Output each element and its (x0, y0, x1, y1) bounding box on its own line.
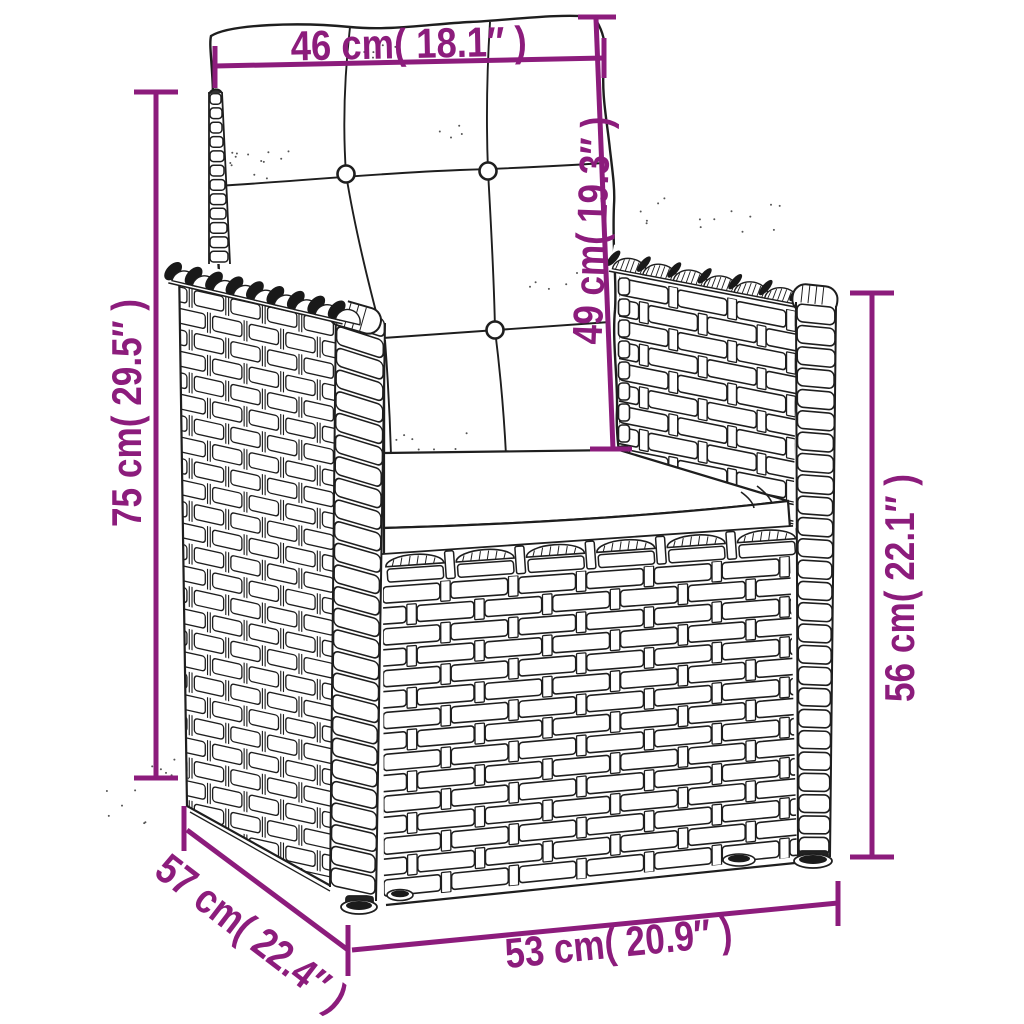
svg-text:49 cm( 19.3″ ): 49 cm( 19.3″ ) (563, 116, 619, 346)
svg-text:46 cm( 18.1″ ): 46 cm( 18.1″ ) (290, 18, 527, 70)
svg-text:75 cm( 29.5″ ): 75 cm( 29.5″ ) (103, 299, 150, 527)
svg-text:56 cm( 22.1″ ): 56 cm( 22.1″ ) (876, 474, 923, 702)
